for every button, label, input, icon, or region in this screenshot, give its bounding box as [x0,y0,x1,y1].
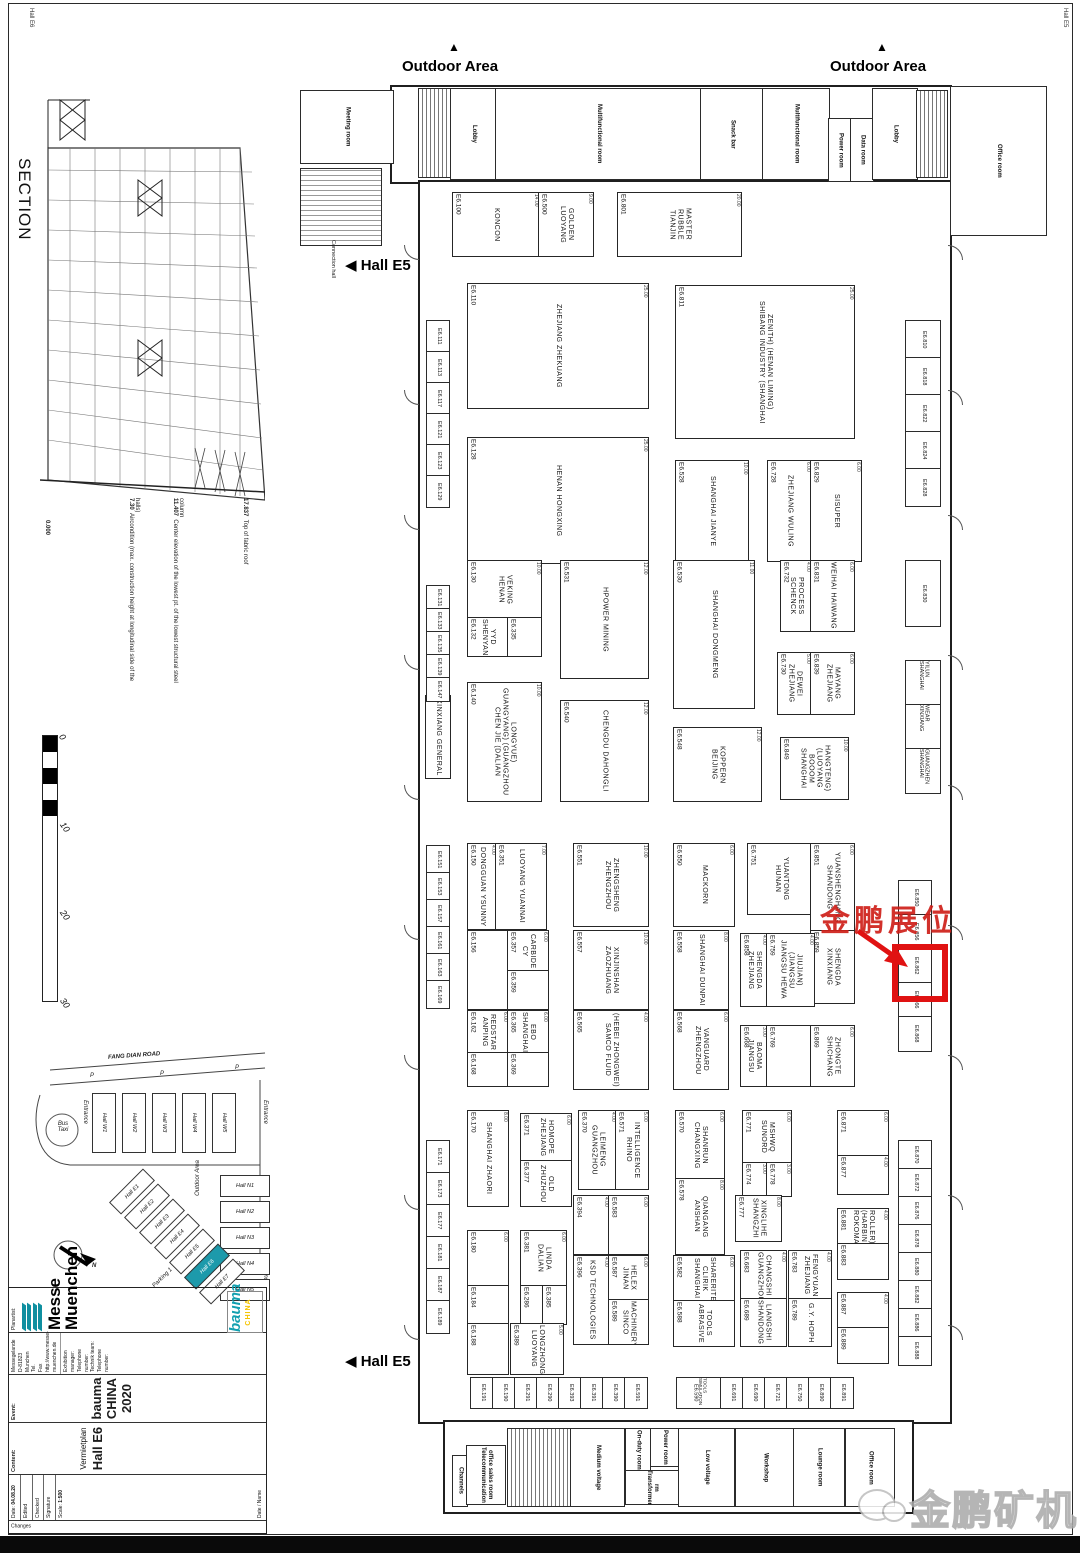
booth-dimension: 25.00 [848,287,853,300]
booth-exhibitor-name: HENAN HONGXING [554,465,562,537]
strip-booth-label: E6.117 [435,390,441,407]
room-power-room: Power room [828,118,852,182]
room-label: Lounge room [816,1448,823,1486]
row-booth: E6.393 [558,1377,582,1409]
booth-number: E6.783 [790,1252,797,1273]
booth-number: E6.548 [675,729,682,750]
booth-number: E6.689 [742,1300,749,1321]
room-lobby: Lobby [450,88,497,180]
watermark-text: 金鹏矿机 [910,1478,1078,1536]
booth-exhibitor-name: ZHEJIANG WULING [785,475,793,547]
booth-number: E6.668 [742,1027,749,1048]
booth-e6-849: E6.849SHANGHAI BOOOM (LUOYANG HANGTENG)1… [780,737,849,800]
booth-e6-357: E6.357CY CARBIDE6.00 [507,930,549,972]
booth-exhibitor-name: XINXIANG SHENGDA [824,932,840,1001]
booth-number: E6.777 [737,1197,744,1218]
booth-e6-371: E6.371ZHEJIANG HOMOPE6.00 [520,1113,572,1162]
booth-e6-689: E6.689SHANDONG LIANGSHI [740,1298,787,1347]
booth-exhibitor-name: HPOWER MINING [600,587,608,652]
booth-number: E6.839 [812,654,819,675]
room-label: On-duty room [635,1430,642,1470]
door-arc [948,655,963,670]
booth-e6-829: E6.829SISUPER6.00 [810,460,862,562]
booth-e6-789: E6.789G.Y. HOPH [788,1298,832,1347]
booth-number: E6.531 [562,562,569,583]
room-block [300,168,382,246]
room-medium-voltage: Medium voltage [570,1428,625,1507]
booth-dimension: 6.00 [722,1012,727,1022]
booth-dimension: 6.00 [718,1112,723,1122]
booth-exhibitor-name: SINCO MACHINERY [620,1301,636,1343]
booth-e6-396: E6.396KSD TECHNOLOGIES4.00 [573,1255,610,1345]
booth-exhibitor-name: XINXIANG GENERAL [434,699,442,776]
strip-booth-label: E6.828 [920,479,926,496]
booth-dimension: 4.00 [882,1210,887,1220]
strip-booth: E6.878 [898,1224,932,1254]
booth-e6-381: E6.381DALIAN LINDA6.00 [520,1230,567,1287]
room-label: Transformer rm [645,1470,659,1505]
booth-number: E6.728 [769,462,776,483]
booth-number: E6.889 [839,1329,846,1350]
booth-number: E6.582 [675,1257,682,1278]
booth-number: E6.771 [744,1112,751,1133]
room-low-voltage: Low voltage [678,1428,735,1507]
booth-exhibitor-name: ANPING REDSTAR [480,1012,496,1052]
booth-number: E6.168 [469,1054,476,1075]
booth-dimension: 6.00 [785,1112,790,1122]
row-booth: E6.590SIMULATION TOOLS [676,1377,722,1409]
booth-number: E6.869 [812,1027,819,1048]
row-booth-label: E6.190 [501,1384,507,1401]
booth-exhibitor-name: ZHEJIANG HOMOPE [538,1115,554,1160]
booth-number: E6.128 [469,439,476,460]
strip-booth: E6.151 [426,845,450,874]
booth-number: E6.156 [469,932,476,953]
room-label: Multifunctional room [793,104,800,163]
strip-booth-label: E6.121 [435,421,441,438]
strip-booth-label: E6.177 [435,1212,441,1229]
booth-e6-730: E6.730ZHEJIANG DEWEI5.00 [777,652,812,715]
booth-dimension: 6.00 [848,1027,853,1037]
booth-e6-351: E6.351LUOYANG YUANNAI7.00 [495,843,547,930]
booth-number: E6.570 [677,1112,684,1133]
booth-number: E6.769 [768,1027,775,1048]
row-booth: E6.750 [786,1377,810,1409]
booth-e6-859: E6.859XINXIANG SHENGDA [810,930,855,1004]
booth-e6-394: E6.3944.00 [573,1195,610,1255]
strip-booth-label: E6.147 [435,681,441,698]
strip-booth: XINXIANG WEAR [905,704,941,750]
booth-e6-550: E6.550MACKORN6.00 [673,843,735,927]
room-label: Lobby [892,125,899,143]
row-booth: E6.390 [602,1377,626,1409]
booth-number: E6.858 [742,935,749,956]
booth-exhibitor-name: JINAN HELEX [620,1257,636,1299]
hall-e5-link-bottom: ◀ Hall E5 [345,1352,411,1370]
strip-booth-label: E6.131 [435,589,441,606]
booth-exhibitor-name: SHICHANG ZHONGTE [824,1027,840,1085]
door-arc [948,515,963,530]
booth: XINXIANG GENERAL [425,695,451,779]
strip-booth: E6.129 [426,475,450,508]
booth-exhibitor-name: DONGGUAN YSUNNY [478,847,486,927]
booth-exhibitor-name: ROKOMA (HARBIN ROLLER) [851,1210,875,1244]
booth-exhibitor-name: SHANGZHI XINGLIHE [750,1197,766,1240]
bottom-black-bar [0,1536,1080,1553]
booth-e6-140: E6.140CHEN JIE (DALIAN GUANGYANG) (GUANG… [467,682,542,802]
booth-e6-583: E6.5836.00 [608,1195,649,1255]
booth-number: E6.565 [575,1012,582,1033]
room-lobby: Lobby [872,88,918,180]
strip-booth: E6.828 [905,468,941,507]
booth-exhibitor-name: WEIHAI HAIWANG [828,562,836,629]
booth-e6-130: E6.130HENAN VEKING10.00 [467,560,542,619]
booth-number: E6.811 [677,287,684,307]
booth-e6-869: E6.869SHICHANG ZHONGTE6.00 [810,1025,855,1087]
booth-dimension: 4.00 [825,1252,830,1262]
strip-booth-label: E6.163 [435,959,441,976]
booth-number: E6.871 [839,1112,846,1133]
plan-layer: Meeting roomLobbyMultifunctional roomSna… [0,0,1080,1553]
booth-number: E6.357 [509,932,516,953]
wechat-icon [858,1487,904,1527]
strip-booth-label: E6.161 [435,932,441,949]
booth-exhibitor-name: SHANGHAI BOOOM (LUOYANG HANGTENG) [798,739,830,798]
booth-e6-565: E6.565SAMCO FLUID (HEBEI ZHONGWEI)4.00 [573,1010,649,1090]
booth-exhibitor-name: CY CARBIDE [520,932,536,970]
booth-e6-887: E6.8874.00 [837,1292,889,1329]
room-label: Power room [837,133,844,168]
strip-booth: E6.822 [905,394,941,433]
booth-exhibitor-name: SHENYANG YYD [480,619,496,655]
room-block [916,90,948,178]
room-workshop: Workshop [735,1428,795,1507]
booth-exhibitor-name: HENAN VEKING [496,562,512,617]
booth-dimension: 6.00 [728,845,733,855]
booth-e6-759: E6.759JIANGSU HEWA (JIANGSU JIUJIAN)4.00 [766,933,815,1007]
booth-dimension: 6.00 [848,562,853,572]
booth-exhibitor-name: HUNAN YUANTONG [773,845,789,912]
booth-e6-557: E6.557ZAOZHUANG XINJINSHAN10.00 [573,930,649,1010]
booth-dimension: 4.00 [882,1157,887,1167]
booth-exhibitor-name: JIANGSU HEWA (JIANGSU JIUJIAN) [778,935,802,1004]
booth-number: E6.851 [812,845,819,866]
booth-e6-751: E6.751HUNAN YUANTONG6.00 [747,843,815,915]
booth-exhibitor-name: CHEN JIE (DALIAN GUANGYANG) (GUANGZHOU L… [492,685,516,798]
booth-e6-540: E6.540CHENGDU DAHONGLI12.00 [560,700,649,802]
booth-e6-774: E6.7743.00 [742,1162,768,1197]
room-label: Snack bar [729,120,736,149]
row-booth-label: E6.890 [817,1384,823,1401]
booth-exhibitor-name: G.Y. HOPH [806,1303,814,1343]
strip-booth: E6.161 [426,926,450,955]
booth-exhibitor-name: SUNORD MSHWQ [759,1112,775,1162]
booth-number: E6.557 [575,932,582,953]
booth-dimension: 8.00 [718,1180,723,1190]
outdoor-area-right: Outdoor Area [830,58,926,75]
booth-number: E6.381 [522,1232,529,1253]
booth-number: E6.286 [522,1287,529,1308]
booth-number: E6.877 [839,1157,846,1178]
strip-booth-label: E6.151 [435,851,441,868]
strip-booth: E6.133 [426,608,450,633]
strip-booth-label: E6.133 [435,612,441,629]
strip-booth: E6.189 [426,1300,450,1334]
connection-hall-label: Connection hall [330,240,336,278]
strip-booth-label: E6.123 [435,452,441,469]
strip-booth: E6.139 [426,654,450,679]
booth-exhibitor-name: SAMCO FLUID (HEBEI ZHONGWEI) [603,1013,619,1088]
booth-dimension: 8.00 [775,1197,780,1207]
booth-number: E6.789 [790,1300,797,1321]
door-arc [948,245,963,260]
strip-booth-label: E6.129 [435,483,441,500]
strip-booth: E6.131 [426,585,450,610]
booth-exhibitor-name: RHINO INTELLIGENCE [624,1113,640,1188]
row-booth: E6.721 [764,1377,788,1409]
booth-exhibitor-name: BEIJING KOPPERN [709,729,725,799]
room-on-duty-room: On-duty room [625,1428,651,1472]
outdoor-area-left: Outdoor Area [402,58,498,75]
booth-e6-571: E6.571RHINO INTELLIGENCE5.00 [615,1110,649,1190]
room-label: Low voltage [703,1450,710,1485]
booth-number: E6.583 [610,1197,617,1218]
booth-number: E6.887 [839,1294,846,1315]
booth-dimension: 6.00 [848,654,853,664]
booth-exhibitor-name: SHANGHAI DUNPAI [697,934,705,1006]
strip-booth: E6.886 [898,1308,932,1338]
drawing-sheet: Hall E6 Hall E5 SECTION 0.000 7.30 [0,0,1080,1553]
booth-number: E6.587 [610,1257,617,1278]
booth-exhibitor-name: MACKORN [700,865,708,904]
door-arc [404,515,419,530]
strip-booth-label: SHANGHAI GUANGZHEN [918,749,929,793]
strip-booth-label: SHANGHAI YILUN [918,661,929,705]
booth-dimension: 5.00 [642,1112,647,1122]
room-label: Medium voltage [594,1445,601,1490]
booth-number: E6.130 [469,562,476,583]
booth-number: E6.377 [522,1162,529,1183]
booth-number: E6.588 [675,1302,682,1323]
row-booth: E6.290 [536,1377,560,1409]
booth-dimension: 12.00 [642,702,647,715]
strip-booth: E6.880 [898,1252,932,1282]
strip-booth-label: E6.878 [912,1230,918,1247]
strip-booth-label: E6.111 [435,328,441,345]
booth-exhibitor-name: CHENGDU DAHONGLI [600,710,608,792]
booth-number: E6.829 [812,462,819,483]
booth-e6-877: E6.8774.00 [837,1155,889,1195]
booth-dimension: 25.00 [642,439,647,452]
booth-number: E6.778 [768,1164,775,1185]
row-booth-label: E6.591 [633,1384,639,1401]
strip-booth-label: E6.135 [435,635,441,652]
booth-e6-370: E6.370GUANGZHOU LEIMENG4.00 [578,1110,617,1190]
booth-number: E6.369 [509,1054,516,1075]
strip-booth-label: E6.870 [912,1146,918,1163]
booth-exhibitor-name: GUANGZHOU LEIMENG [589,1113,605,1188]
booth-dimension: 6.00 [728,1257,733,1267]
booth-e6-881: E6.881ROKOMA (HARBIN ROLLER)4.00 [837,1208,889,1245]
strip-booth: E6.824 [905,431,941,470]
booth-dimension: 6.00 [848,845,853,855]
strip-booth-label: E6.872 [912,1174,918,1191]
booth-exhibitor-name: ZHEJIANG ZHEKUANG [554,304,562,388]
room-label: Channels [457,1467,464,1494]
strip-booth: E6.111 [426,320,450,353]
booth-e6-771: E6.771SUNORD MSHWQ6.00 [742,1110,792,1164]
room-lounge-room: Lounge room [793,1428,845,1507]
booth-e6-558: E6.558SHANGHAI DUNPAI8.00 [673,930,729,1010]
row-booth: E6.191 [470,1377,494,1409]
booth-exhibitor-name: ZHENGZHOU ZHENGSHENG [603,846,619,925]
booth-number: E6.500 [540,194,547,215]
booth-exhibitor-name: GUANGZHOU CHANGSHI [755,1252,771,1298]
booth-dimension: 10.00 [535,562,540,575]
booth-e6-359: E6.359 [507,970,549,1010]
booth-e6-582: E6.582SHANGHAI CLIRIK SHARERITE6.00 [673,1255,735,1302]
strip-booth: E6.181 [426,1236,450,1270]
booth-exhibitor-name: SHANGHAI CLIRIK SHARERITE [692,1257,716,1300]
booth-e6-180: E6.1806.00 [467,1230,509,1287]
room-label: Power room [661,1430,668,1465]
booth-e6-831: E6.831WEIHAI HAIWANG6.00 [810,560,855,632]
room-label: Office room [995,144,1002,178]
booth-dimension: 12.00 [642,562,647,575]
booth-number: E6.140 [469,684,476,705]
row-booth-label: E6.393 [567,1384,573,1401]
strip-booth-label: E6.824 [920,442,926,459]
booth-e6-528: E6.528SHANGHAI JIANYE10.00 [675,460,749,562]
up-arrow-icon: ▲ [876,40,888,54]
booth-dimension: 3.00 [785,1164,790,1174]
booth-number: E6.150 [469,845,476,866]
booth-e6-110: E6.110ZHEJIANG ZHEKUANG25.00 [467,283,649,409]
booth-number: E6.335 [509,619,516,640]
row-booth-name: SIMULATION TOOLS [697,1378,706,1408]
booth-e6-668: E6.668JIANGSU BAOMA3.00 [740,1025,768,1087]
booth-dimension: 10.00 [642,932,647,945]
booth-e6-548: E6.548BEIJING KOPPERN12.00 [673,727,762,802]
booth-e6-568: E6.568ZHENGZHOU VANGUARD6.00 [673,1010,729,1090]
door-arc [948,390,963,405]
strip-booth-label: E6.169 [435,986,441,1003]
door-arc [404,1055,419,1070]
booth-number: E6.558 [675,932,682,953]
booth-number: E6.389 [512,1325,519,1346]
booth-exhibitor-name: DALIAN LINDA [535,1232,551,1285]
strip-booth: E6.169 [426,980,450,1009]
room-multifunctional-room: Multifunctional room [762,88,830,180]
booth-exhibitor-name: KSD TECHNOLOGIES [587,1260,595,1340]
booth-e6-589: E6.589SINCO MACHINERY [608,1299,649,1345]
booth-exhibitor-name: ZAOZHUANG XINJINSHAN [603,933,619,1008]
booth-number: E6.751 [749,845,756,866]
door-arc [404,1195,419,1210]
booth-dimension: 6.00 [642,1257,647,1267]
booth-number: E6.540 [562,702,569,723]
booth-dimension: 25.00 [642,285,647,298]
booth-number: E6.365 [509,1012,516,1033]
row-booth: E6.891 [830,1377,854,1409]
strip-booth-label: E6.113 [435,359,441,376]
booth-e6-871: E6.8716.00 [837,1110,889,1157]
row-booth: E6.291 [514,1377,538,1409]
strip-booth: E6.872 [898,1168,932,1198]
booth-e6-500: E6.500LUOYANG GOLDEN9.00 [538,192,594,257]
strip-booth: E6.123 [426,444,450,477]
booth-number: E6.100 [454,194,461,215]
booth-dimension: 5.00 [557,1325,562,1335]
booth-number: E6.528 [677,462,684,483]
strip-booth-label: E6.810 [920,331,926,348]
booth-e6-156: E6.156 [467,930,509,1010]
strip-booth-label: E6.876 [912,1202,918,1219]
booth-e6-777: E6.777SHANGZHI XINGLIHE8.00 [735,1195,782,1242]
booth-number: E6.732 [782,562,789,583]
strip-booth-label: E6.153 [435,878,441,895]
booth-exhibitor-name: SISUPER [832,494,840,528]
booth-exhibitor-name: ZHEJIANG FENGYUAN [802,1252,818,1298]
booth-dimension: 7.00 [540,845,545,855]
strip-booth-label: E6.886 [912,1314,918,1331]
booth-number: E6.883 [839,1245,846,1266]
room-meeting-room: Meeting room [300,90,394,164]
room-data-room: Data room [850,118,874,182]
strip-booth: E6.177 [426,1204,450,1238]
row-booth-label: E6.290 [545,1384,551,1401]
booth-number: E6.110 [469,285,476,305]
booth-number: E6.370 [580,1112,587,1133]
strip-booth: E6.153 [426,872,450,901]
booth-e6-365: E6.365SHANGHAI EBO6.00 [507,1010,549,1054]
room-label: Lobby [470,125,477,143]
room-multifunctional-room: Multifunctional room [495,88,702,180]
booth-exhibitor-name: LUOYANG GOLDEN [558,194,574,254]
booth-exhibitor-name: TIANJIN RUBBLE MASTER [667,194,691,254]
booth-e6-728: E6.728ZHEJIANG WULING6.00 [767,460,812,562]
booth-number: E6.394 [575,1197,582,1218]
booth-dimension: 10.00 [642,845,647,858]
booth-dimension: 8.00 [502,1112,507,1122]
booth-dimension: 4.00 [780,1252,785,1262]
booth-e6-286: E6.286 [520,1285,544,1325]
strip-booth: E6.818 [905,357,941,396]
booth-dimension: 6.00 [542,932,547,942]
room-label: Workshop [762,1453,769,1482]
row-booth-label: E6.721 [773,1384,779,1401]
booth-exhibitor-name: SHANGHAI JIANYE [708,476,716,547]
booth-number: E6.396 [575,1257,582,1278]
row-booth-label: E6.191 [479,1384,485,1401]
strip-booth: E6.173 [426,1172,450,1206]
row-booth-label: E6.690 [751,1384,757,1401]
strip-booth-label: E6.187 [435,1276,441,1293]
room-telecommunication-office-sales-room: Telecommunication office sales room [466,1445,506,1505]
row-booth-label: E6.691 [729,1384,735,1401]
row-booth-label: E6.391 [589,1384,595,1401]
door-arc [948,1055,963,1070]
booth-e6-184: E6.184 [467,1285,509,1325]
booth-number: E6.730 [779,654,786,675]
strip-booth-label: E6.888 [912,1342,918,1359]
booth-exhibitor-name: ZHUZHOU OLD [538,1162,554,1205]
door-arc [948,1195,963,1210]
booth-number: E6.132 [469,619,476,640]
booth-e6-883: E6.883 [837,1243,889,1280]
room-office-room: Office room [950,86,1047,236]
strip-booth: SHANGHAI GUANGZHEN [905,748,941,794]
